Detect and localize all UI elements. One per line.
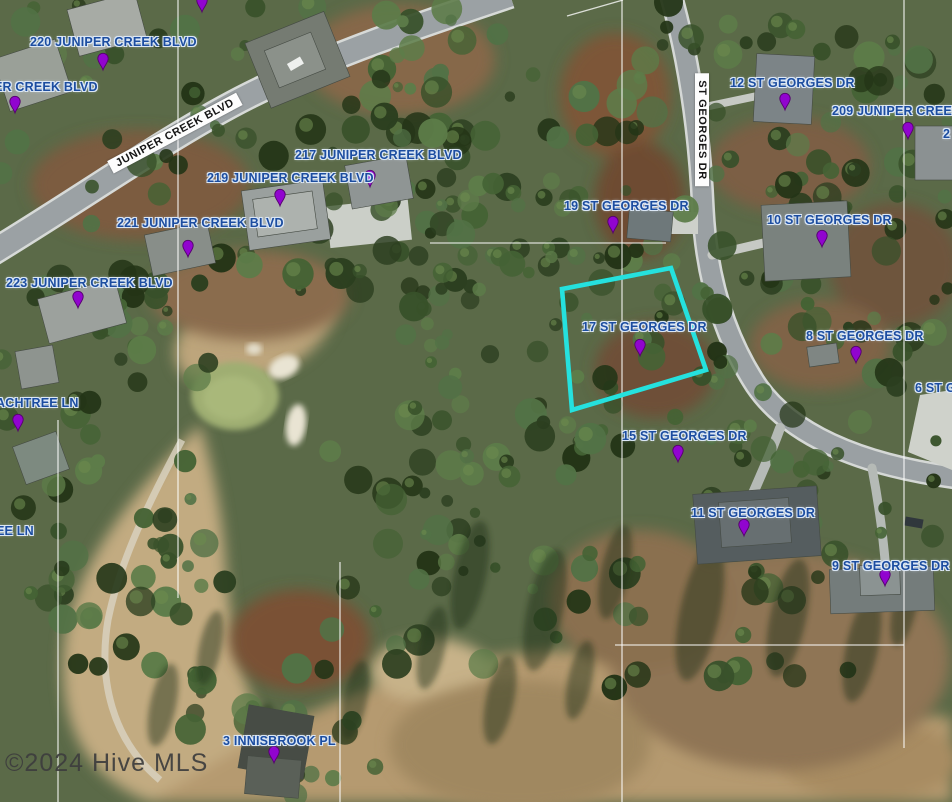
provider-watermark: ©2024 Hive MLS: [5, 749, 208, 778]
address-labels: 220 JUNIPER CREEK BLVDER CREEK BLVD217 J…: [0, 0, 952, 802]
address-label: 220 JUNIPER CREEK BLVD: [30, 35, 197, 49]
aerial-map: JUNIPER CREEK BLVDST GEORGES DR 220 JUNI…: [0, 0, 952, 802]
address-label: 17 ST GEORGES DR: [582, 320, 707, 334]
address-label: ER CREEK BLVD: [0, 80, 98, 94]
address-label: 217 JUNIPER CREEK BLVD: [295, 148, 462, 162]
address-label: EE LN: [0, 524, 34, 538]
address-label: 9 ST GEORGES DR: [832, 559, 950, 573]
address-label: 219 JUNIPER CREEK BLVD: [207, 171, 374, 185]
address-label: 209 JUNIPER CREEK: [832, 104, 952, 118]
address-label: 11 ST GEORGES DR: [691, 506, 815, 520]
address-label: 19 ST GEORGES DR: [564, 199, 689, 213]
address-label: 2: [943, 127, 950, 141]
address-label: 6 ST G: [915, 381, 952, 395]
address-label: 221 JUNIPER CREEK BLVD: [117, 216, 284, 230]
address-label: 15 ST GEORGES DR: [622, 429, 747, 443]
address-label: 10 ST GEORGES DR: [767, 213, 892, 227]
address-label: 3 INNISBROOK PL: [223, 734, 336, 748]
address-label: 12 ST GEORGES DR: [730, 76, 855, 90]
address-label: 223 JUNIPER CREEK BLVD: [6, 276, 173, 290]
address-label: ACHTREE LN: [0, 396, 79, 410]
address-label: 8 ST GEORGES DR: [806, 329, 924, 343]
